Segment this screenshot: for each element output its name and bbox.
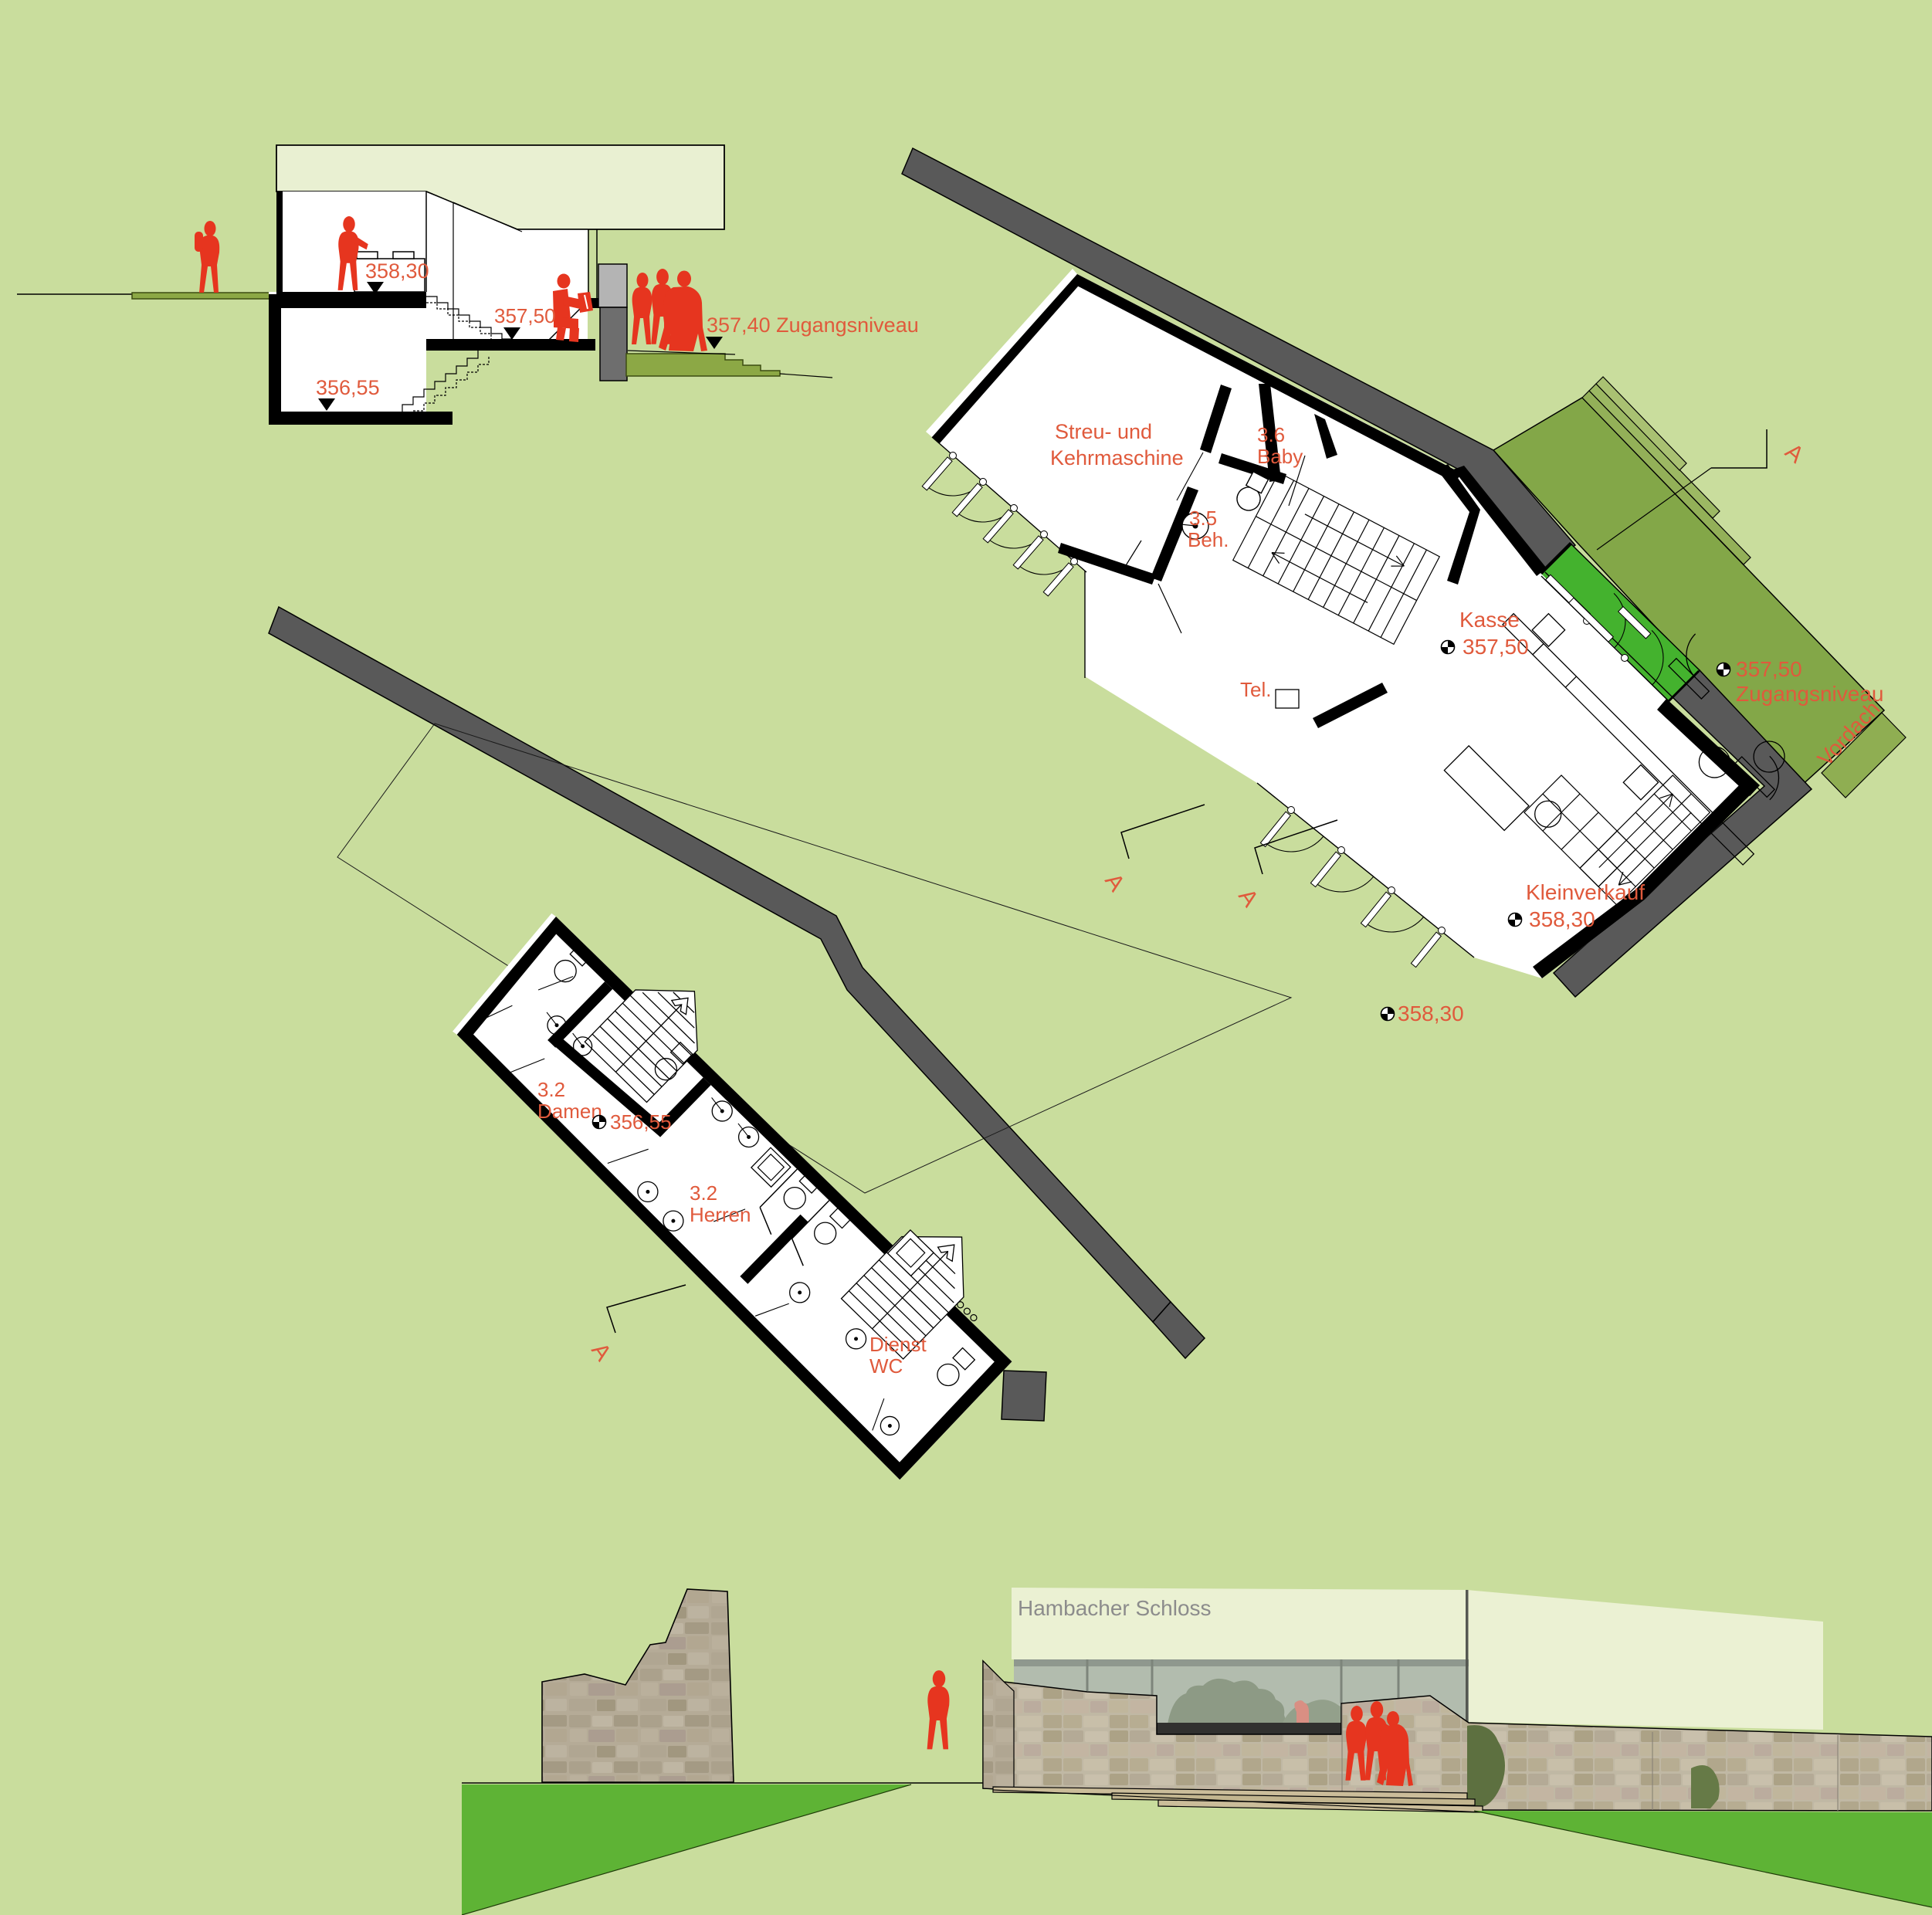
svg-text:Damen: Damen <box>537 1100 602 1123</box>
svg-text:Herren: Herren <box>690 1203 751 1226</box>
svg-text:3.2: 3.2 <box>690 1181 717 1205</box>
svg-text:357,50: 357,50 <box>1736 657 1802 681</box>
svg-text:Dienst: Dienst <box>869 1333 927 1356</box>
svg-text:3.2: 3.2 <box>537 1078 565 1101</box>
svg-text:356,55: 356,55 <box>316 376 380 399</box>
svg-text:Kleinverkauf: Kleinverkauf <box>1526 880 1645 904</box>
svg-text:358,30: 358,30 <box>1529 907 1595 931</box>
svg-text:Baby: Baby <box>1257 445 1303 468</box>
svg-text:Kasse: Kasse <box>1459 608 1520 632</box>
svg-text:356,55: 356,55 <box>610 1110 672 1134</box>
svg-text:358,30: 358,30 <box>1398 1002 1464 1025</box>
svg-text:Hambacher Schloss: Hambacher Schloss <box>1018 1596 1212 1620</box>
svg-text:358,30: 358,30 <box>365 259 429 283</box>
svg-text:Kehrmaschine: Kehrmaschine <box>1050 446 1184 469</box>
svg-text:WC: WC <box>869 1354 903 1378</box>
svg-text:357,40 Zugangsniveau: 357,40 Zugangsniveau <box>707 314 919 337</box>
svg-text:357,50: 357,50 <box>494 304 556 327</box>
svg-text:Streu- und: Streu- und <box>1055 420 1152 443</box>
svg-text:Tel.: Tel. <box>1240 678 1271 701</box>
svg-text:Beh.: Beh. <box>1188 528 1229 551</box>
svg-text:3.6: 3.6 <box>1257 423 1285 446</box>
svg-text:357,50: 357,50 <box>1463 635 1529 659</box>
svg-text:3.5: 3.5 <box>1189 507 1217 530</box>
